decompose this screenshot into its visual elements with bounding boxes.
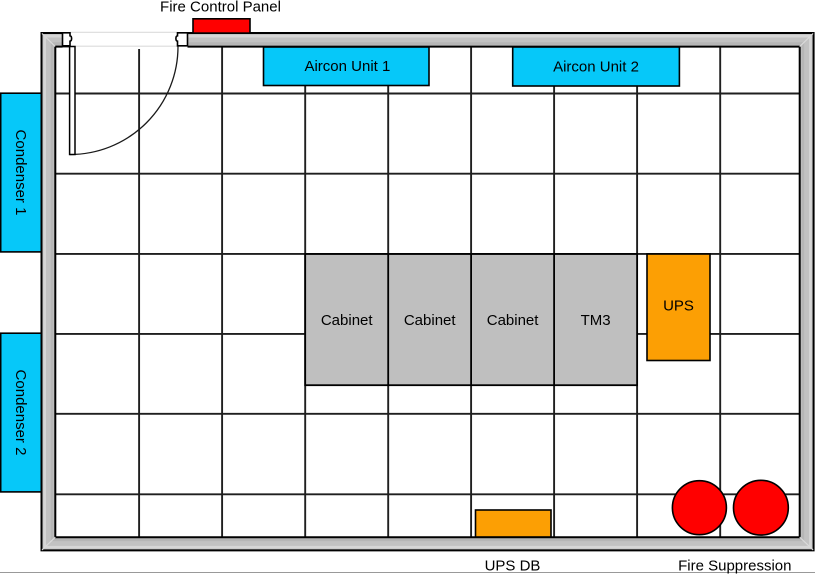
svg-text:Cabinet: Cabinet — [487, 312, 540, 329]
svg-text:UPS: UPS — [663, 298, 694, 315]
svg-text:UPS DB: UPS DB — [485, 558, 541, 575]
svg-text:Aircon Unit 1: Aircon Unit 1 — [304, 58, 390, 75]
svg-text:Cabinet: Cabinet — [404, 312, 457, 329]
svg-text:Condenser 2: Condenser 2 — [12, 370, 29, 456]
svg-text:Condenser 1: Condenser 1 — [12, 130, 29, 216]
svg-text:Fire Suppression: Fire Suppression — [678, 558, 791, 575]
svg-text:Fire Control Panel: Fire Control Panel — [160, 0, 281, 16]
svg-text:Aircon Unit 2: Aircon Unit 2 — [553, 58, 639, 75]
svg-text:TM3: TM3 — [581, 312, 611, 329]
svg-text:Cabinet: Cabinet — [321, 312, 374, 329]
